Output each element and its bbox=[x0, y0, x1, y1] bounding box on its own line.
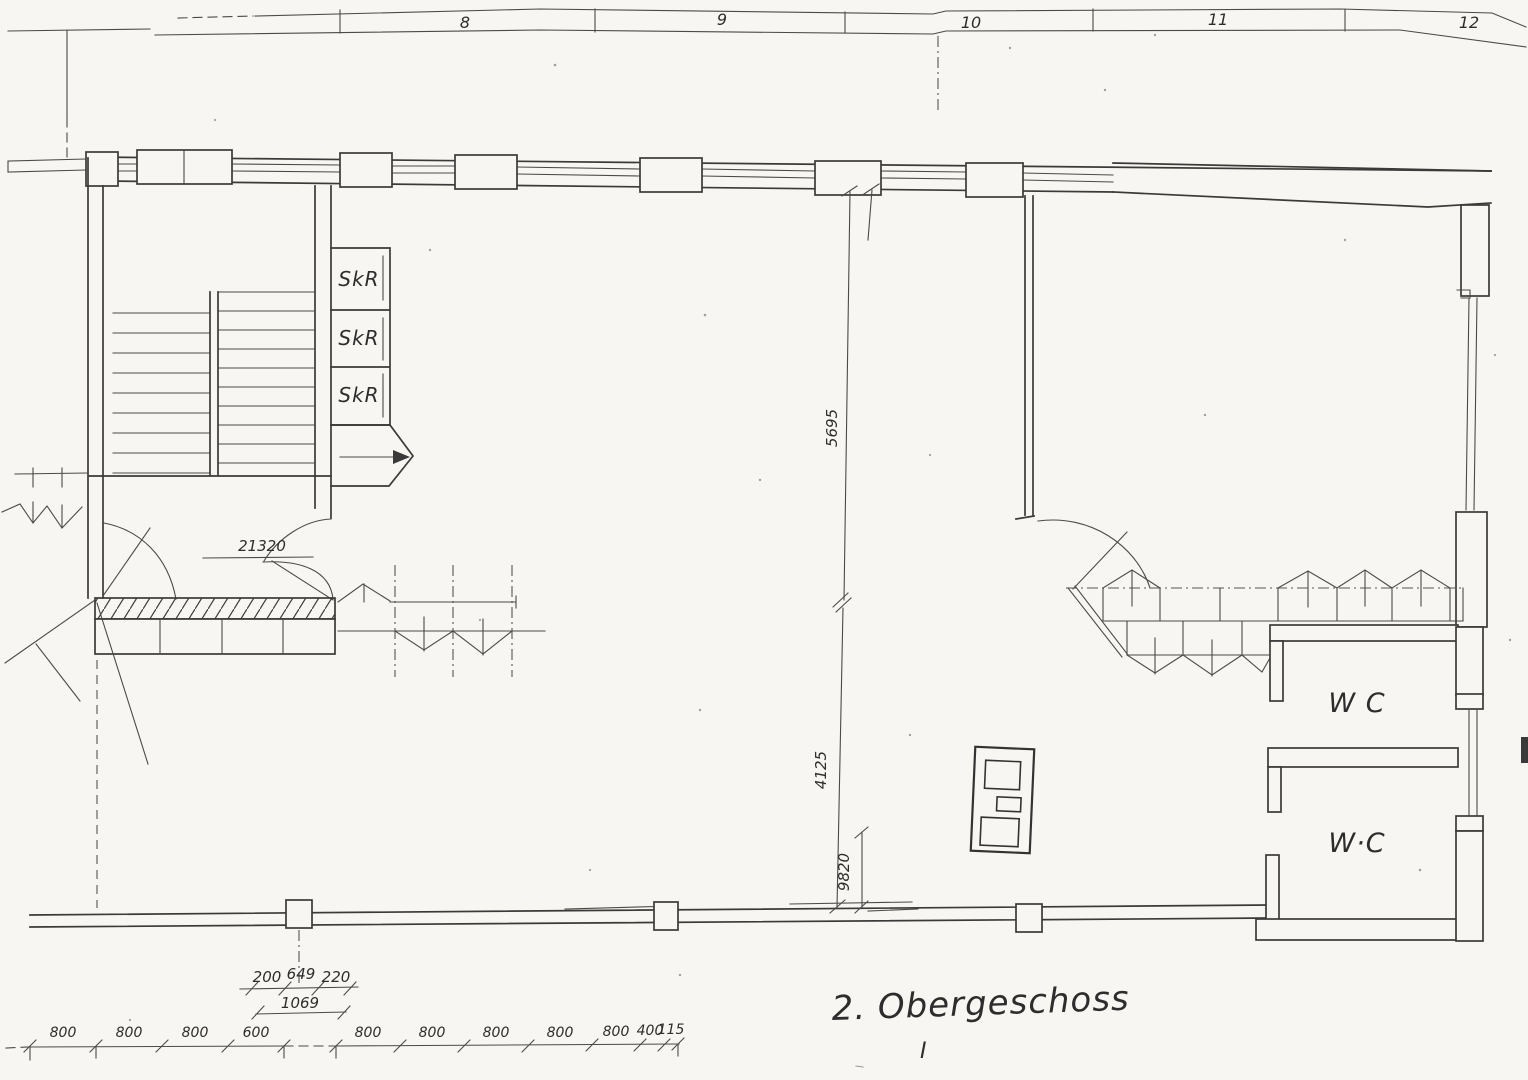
dim-chain-5: 800 bbox=[355, 1025, 382, 1041]
dim-chain: 800 800 800 600 800 800 800 800 800 400 … bbox=[6, 1022, 684, 1060]
wc-rooms: W C W·C bbox=[1256, 625, 1483, 941]
dim-chain-6: 800 bbox=[419, 1025, 446, 1041]
dim-span-lower: 4125 bbox=[812, 751, 830, 789]
skr-label-2: SkR bbox=[338, 326, 379, 350]
wc-label-1: W C bbox=[1328, 688, 1385, 719]
dim-chain-11: 115 bbox=[658, 1022, 685, 1038]
door-swings bbox=[103, 519, 333, 600]
dim-chain-8: 800 bbox=[547, 1025, 574, 1041]
floorplan-drawing: 8 9 10 11 12 bbox=[0, 0, 1528, 1080]
floor-title: 2. Obergeschoss bbox=[831, 979, 1130, 1029]
dim-col-left: 200 bbox=[253, 968, 282, 986]
corridor-casework bbox=[95, 584, 390, 654]
dim-column: 200 649 220 1069 bbox=[240, 930, 358, 1019]
cabinet-symbol bbox=[971, 747, 1034, 853]
grid-axis-band: 8 9 10 11 12 bbox=[155, 9, 1526, 47]
coat-rack-left bbox=[338, 565, 545, 677]
exterior-wall-bottom bbox=[30, 900, 1270, 932]
floor-title-note: I bbox=[920, 1039, 928, 1064]
dim-span-upper: 5695 bbox=[823, 409, 841, 447]
exterior-wall-right bbox=[1456, 205, 1489, 627]
grid-number-12: 12 bbox=[1459, 13, 1479, 32]
dim-chain-2: 800 bbox=[116, 1025, 143, 1041]
dim-chain-3: 800 bbox=[182, 1025, 209, 1041]
scanned-floorplan-sheet: 8 9 10 11 12 bbox=[0, 0, 1528, 1080]
dim-chain-9: 800 bbox=[603, 1024, 630, 1040]
dim-chain-7: 800 bbox=[483, 1025, 510, 1041]
dim-col-mid: 649 bbox=[287, 965, 316, 983]
grid-number-10: 10 bbox=[961, 13, 981, 32]
wc-label-2: W·C bbox=[1328, 828, 1385, 859]
coat-rack-right bbox=[1066, 570, 1463, 676]
dim-chain-1: 800 bbox=[50, 1025, 77, 1041]
skr-label-1: SkR bbox=[338, 267, 379, 291]
partition-wall bbox=[1016, 196, 1150, 589]
dim-vertical: 5695 4125 9820 bbox=[812, 184, 879, 913]
grid-number-8: 8 bbox=[460, 13, 470, 32]
stair-direction-arrow bbox=[331, 425, 413, 486]
grid-number-11: 11 bbox=[1208, 10, 1228, 29]
skr-closets: SkR SkR SkR bbox=[331, 248, 390, 425]
staircase bbox=[103, 186, 331, 518]
dim-corridor-value: 21320 bbox=[238, 537, 286, 555]
dim-chain-4: 600 bbox=[243, 1025, 270, 1041]
floor-title-group: 2. Obergeschoss I bbox=[831, 979, 1130, 1067]
skr-label-3: SkR bbox=[338, 383, 379, 407]
dim-col-right: 220 bbox=[322, 968, 351, 986]
dim-col-total: 1069 bbox=[281, 994, 319, 1012]
scan-edge-mark bbox=[1521, 737, 1528, 763]
dim-span-total: 9820 bbox=[835, 853, 853, 891]
exterior-wall-top bbox=[8, 150, 1491, 207]
exterior-wall-left bbox=[88, 158, 103, 598]
grid-number-9: 9 bbox=[717, 10, 727, 29]
dim-corridor: 21320 bbox=[203, 537, 313, 558]
left-edge-fixtures bbox=[2, 468, 88, 528]
